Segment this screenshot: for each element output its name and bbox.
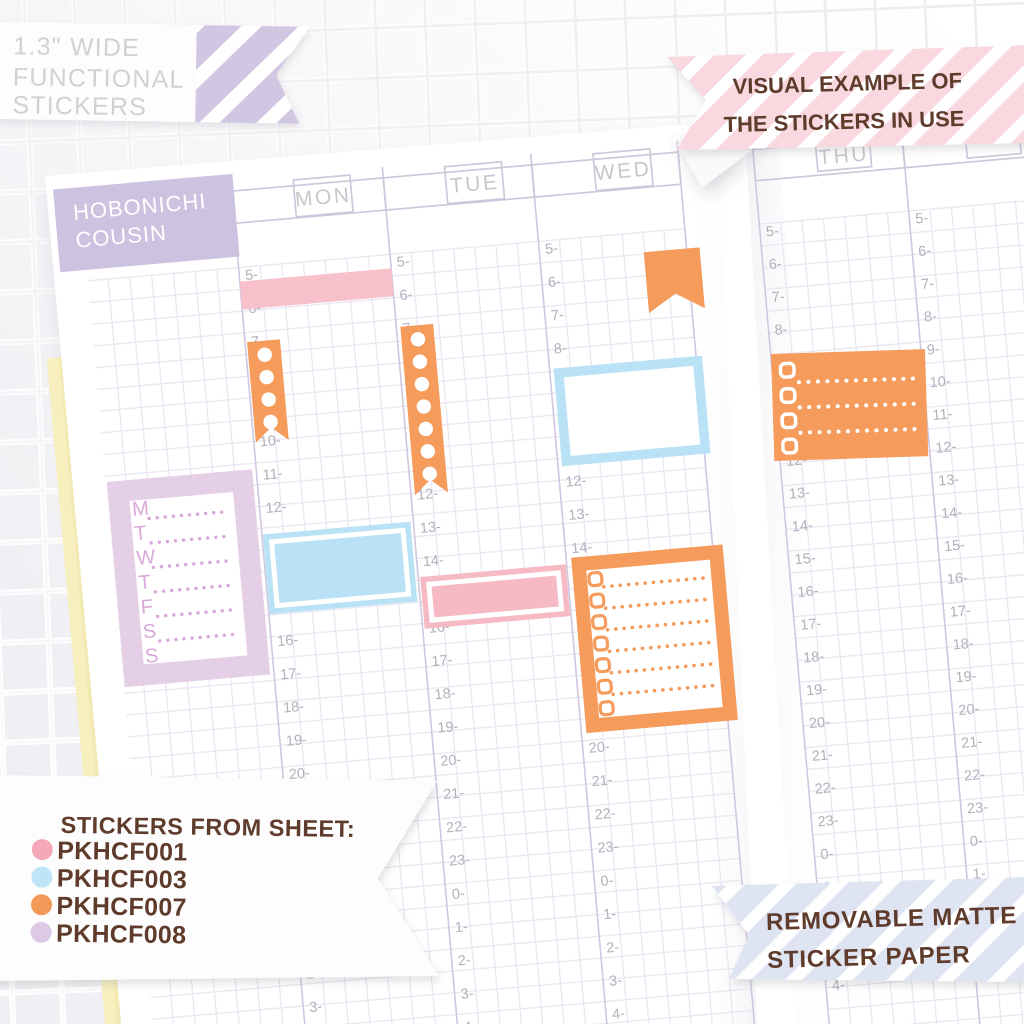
svg-text:19-: 19- (805, 682, 827, 700)
svg-text:M: M (131, 497, 150, 520)
svg-text:11-: 11- (932, 406, 953, 424)
svg-text:WED: WED (594, 157, 652, 185)
svg-text:19-: 19- (437, 719, 459, 737)
svg-text:8-: 8- (774, 322, 788, 339)
svg-text:5-: 5- (544, 241, 558, 258)
svg-text:21-: 21- (443, 785, 465, 803)
svg-text:S: S (142, 620, 157, 643)
svg-text:17-: 17- (431, 652, 453, 670)
svg-text:17-: 17- (800, 616, 822, 634)
svg-text:22-: 22- (446, 819, 468, 837)
svg-text:5-: 5- (765, 223, 779, 240)
svg-text:9-: 9- (926, 341, 940, 358)
svg-text:23-: 23- (448, 852, 470, 870)
svg-text:18-: 18- (952, 636, 974, 654)
svg-text:MON: MON (294, 184, 352, 212)
svg-text:19-: 19- (955, 669, 977, 687)
svg-text:16-: 16- (277, 632, 299, 650)
svg-text:14-: 14- (791, 518, 813, 536)
svg-text:13-: 13- (938, 472, 960, 490)
svg-text:3-: 3- (460, 986, 474, 1003)
svg-text:1-: 1- (454, 919, 468, 936)
svg-text:20-: 20- (588, 739, 610, 757)
svg-text:FUNCTIONAL: FUNCTIONAL (13, 63, 185, 94)
svg-text:12-: 12- (265, 499, 287, 517)
svg-text:0-: 0- (451, 886, 465, 903)
svg-text:5-: 5- (396, 254, 410, 271)
svg-text:S: S (144, 645, 159, 668)
svg-text:18-: 18- (803, 649, 825, 667)
svg-text:8-: 8- (923, 309, 937, 326)
svg-text:4-: 4- (611, 1006, 625, 1023)
svg-text:6-: 6- (768, 256, 782, 273)
svg-text:20-: 20- (808, 714, 830, 732)
svg-text:8-: 8- (553, 341, 567, 358)
svg-text:14-: 14- (422, 552, 444, 570)
svg-text:21-: 21- (811, 747, 833, 765)
svg-text:7-: 7- (920, 276, 934, 293)
svg-text:22-: 22- (963, 767, 985, 785)
svg-text:23-: 23- (966, 800, 988, 818)
svg-text:21-: 21- (591, 772, 613, 790)
svg-text:17-: 17- (280, 666, 302, 684)
svg-text:0-: 0- (820, 846, 834, 863)
svg-text:23-: 23- (817, 813, 839, 831)
svg-text:3-: 3- (609, 973, 623, 990)
svg-text:13-: 13- (568, 506, 590, 524)
svg-text:15-: 15- (943, 537, 965, 555)
svg-text:12-: 12- (935, 439, 957, 457)
svg-text:3-: 3- (309, 999, 323, 1016)
svg-text:14-: 14- (941, 505, 963, 523)
svg-text:1.3" WIDE: 1.3" WIDE (13, 32, 140, 62)
svg-text:STICKER PAPER: STICKER PAPER (767, 941, 971, 974)
svg-text:T: T (138, 571, 152, 594)
svg-text:18-: 18- (434, 686, 456, 704)
svg-text:13-: 13- (788, 485, 810, 503)
svg-text:23-: 23- (597, 839, 619, 857)
svg-text:16-: 16- (797, 583, 819, 601)
svg-text:20-: 20- (958, 701, 980, 719)
svg-text:18-: 18- (282, 699, 304, 717)
svg-text:4-: 4- (463, 1019, 477, 1024)
svg-text:2-: 2- (606, 939, 620, 956)
svg-text:2-: 2- (457, 952, 471, 969)
svg-text:PKHCF001: PKHCF001 (57, 837, 188, 867)
svg-text:15-: 15- (794, 550, 816, 568)
svg-text:F: F (140, 596, 154, 619)
svg-text:12-: 12- (565, 473, 587, 491)
svg-text:7-: 7- (550, 307, 564, 324)
svg-text:19-: 19- (285, 732, 307, 750)
svg-text:10-: 10- (929, 374, 951, 392)
svg-text:20-: 20- (440, 752, 462, 770)
svg-text:11-: 11- (262, 466, 283, 484)
svg-text:5-: 5- (915, 210, 929, 227)
svg-text:22-: 22- (594, 806, 616, 824)
svg-text:13-: 13- (419, 519, 441, 537)
svg-text:14-: 14- (571, 540, 593, 558)
svg-text:TUE: TUE (449, 171, 500, 198)
svg-text:16-: 16- (946, 570, 968, 588)
svg-text:0-: 0- (600, 873, 614, 890)
svg-text:22-: 22- (814, 780, 836, 798)
svg-text:1-: 1- (603, 906, 617, 923)
svg-text:6-: 6- (547, 274, 561, 291)
svg-text:PKHCF007: PKHCF007 (56, 892, 187, 922)
svg-text:PKHCF008: PKHCF008 (56, 920, 187, 950)
svg-text:21-: 21- (961, 734, 983, 752)
svg-text:0-: 0- (969, 833, 983, 850)
svg-text:7-: 7- (771, 289, 785, 306)
svg-text:STICKERS: STICKERS (12, 91, 147, 121)
svg-text:PKHCF003: PKHCF003 (57, 864, 188, 894)
svg-text:T: T (133, 522, 147, 545)
svg-text:6-: 6- (918, 243, 932, 260)
svg-text:17-: 17- (949, 603, 971, 621)
svg-text:6-: 6- (399, 287, 413, 304)
